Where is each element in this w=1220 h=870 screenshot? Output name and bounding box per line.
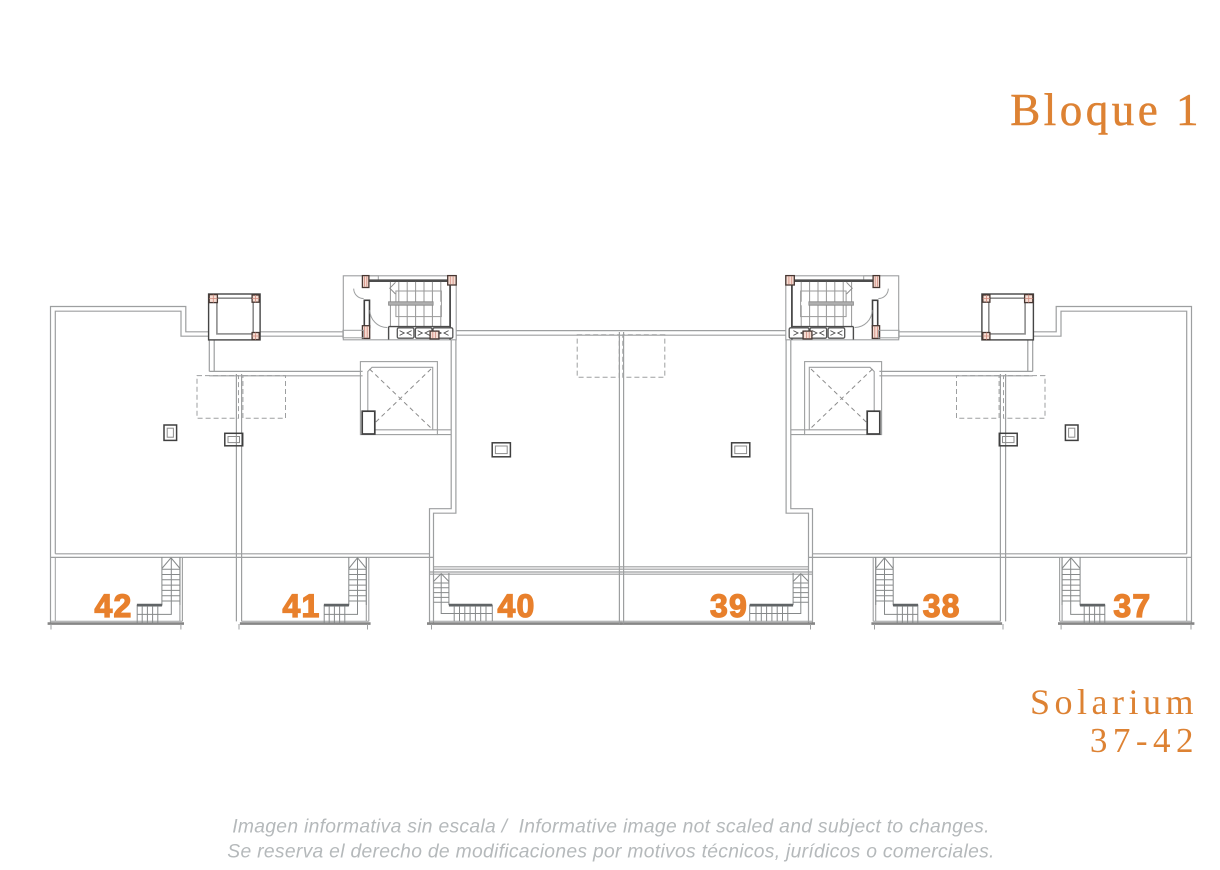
svg-text:39: 39: [710, 588, 748, 624]
svg-text:Solarium: Solarium: [1030, 682, 1198, 722]
svg-text:38: 38: [923, 588, 961, 624]
svg-text:Se reserva el derecho de modif: Se reserva el derecho de modificaciones …: [227, 841, 994, 862]
svg-text:37: 37: [1113, 588, 1151, 624]
svg-text:37-42: 37-42: [1090, 721, 1199, 760]
svg-text:41: 41: [283, 588, 321, 624]
svg-text:Imagen informativa sin escala: Imagen informativa sin escala / Informat…: [232, 816, 990, 837]
svg-text:Bloque 1: Bloque 1: [1010, 85, 1202, 135]
svg-text:40: 40: [498, 588, 536, 624]
svg-text:42: 42: [95, 588, 133, 624]
